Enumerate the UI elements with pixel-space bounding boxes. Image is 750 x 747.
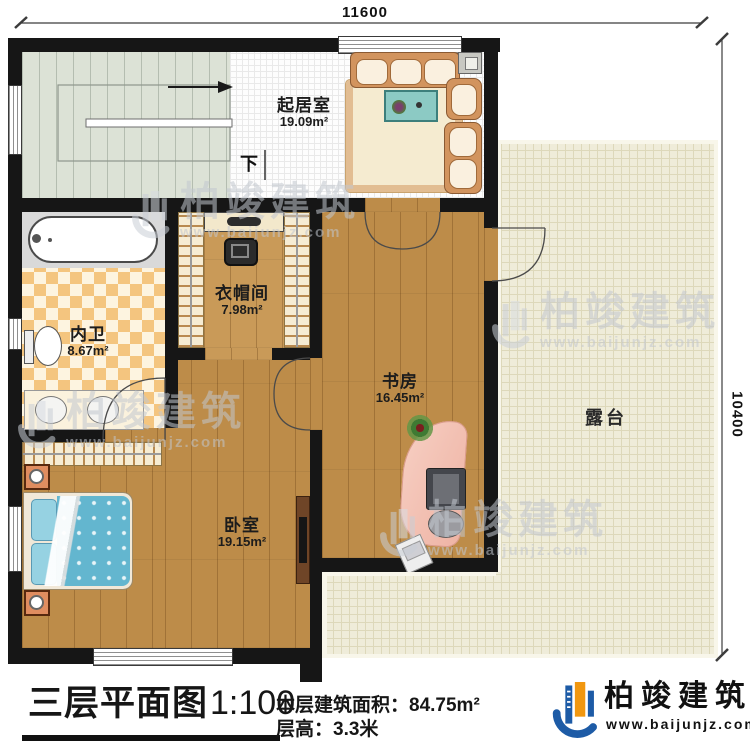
floor-area-stat: 本层建筑面积：84.75m² <box>276 690 480 717</box>
room-label-cloak: 衣帽间 7.98m² <box>192 284 292 318</box>
brand-logo-icon <box>548 676 600 740</box>
room-label-bedroom: 卧室 19.15m² <box>192 516 292 550</box>
room-area: 19.15m² <box>192 535 292 550</box>
dimension-top-value: 11600 <box>335 4 395 21</box>
room-name: 内卫 <box>38 325 138 344</box>
door-living-study-right <box>402 212 440 249</box>
room-area: 8.67m² <box>38 344 138 359</box>
room-label-terrace: 露台 <box>556 408 656 428</box>
door-hall-study-top <box>274 358 310 394</box>
room-name: 起居室 <box>254 96 354 115</box>
door-living-study-left <box>365 212 402 249</box>
floor-area-label: 本层建筑面积： <box>276 695 409 716</box>
floor-height-label: 层高： <box>276 719 333 740</box>
staircase-markings <box>58 81 265 180</box>
door-hall-study-bottom <box>274 394 310 430</box>
room-area: 7.98m² <box>192 303 292 318</box>
room-area: 16.45m² <box>350 391 450 406</box>
floor-height-stat: 层高：3.3米 <box>276 714 378 741</box>
title-underline <box>22 735 280 741</box>
brand-website: www.baijunjz.com <box>606 716 750 732</box>
door-study-terrace <box>492 228 545 281</box>
brand-name: 柏竣建筑 <box>604 682 750 712</box>
plan-title-row: 三层平面图 1:100 <box>28 686 295 721</box>
room-name: 卧室 <box>192 516 292 535</box>
dimension-right-value: 10400 <box>729 382 746 448</box>
stairs-down-label: 下 <box>240 150 258 176</box>
floor-plan-page: 柏竣建筑 www.baijunjz.com 柏竣建筑 www.baijunjz.… <box>0 0 750 747</box>
room-area: 19.09m² <box>254 115 354 130</box>
room-label-bath: 内卫 8.67m² <box>38 325 138 359</box>
room-name: 衣帽间 <box>192 284 292 303</box>
door-swings <box>103 212 545 440</box>
floor-area-value: 84.75m² <box>409 695 480 716</box>
floor-height-value: 3.3米 <box>333 719 378 740</box>
plan-title: 三层平面图 <box>28 686 208 721</box>
room-label-study: 书房 16.45m² <box>350 372 450 406</box>
room-label-living: 起居室 19.09m² <box>254 96 354 130</box>
door-bathroom <box>103 378 165 440</box>
room-name: 书房 <box>350 372 450 391</box>
